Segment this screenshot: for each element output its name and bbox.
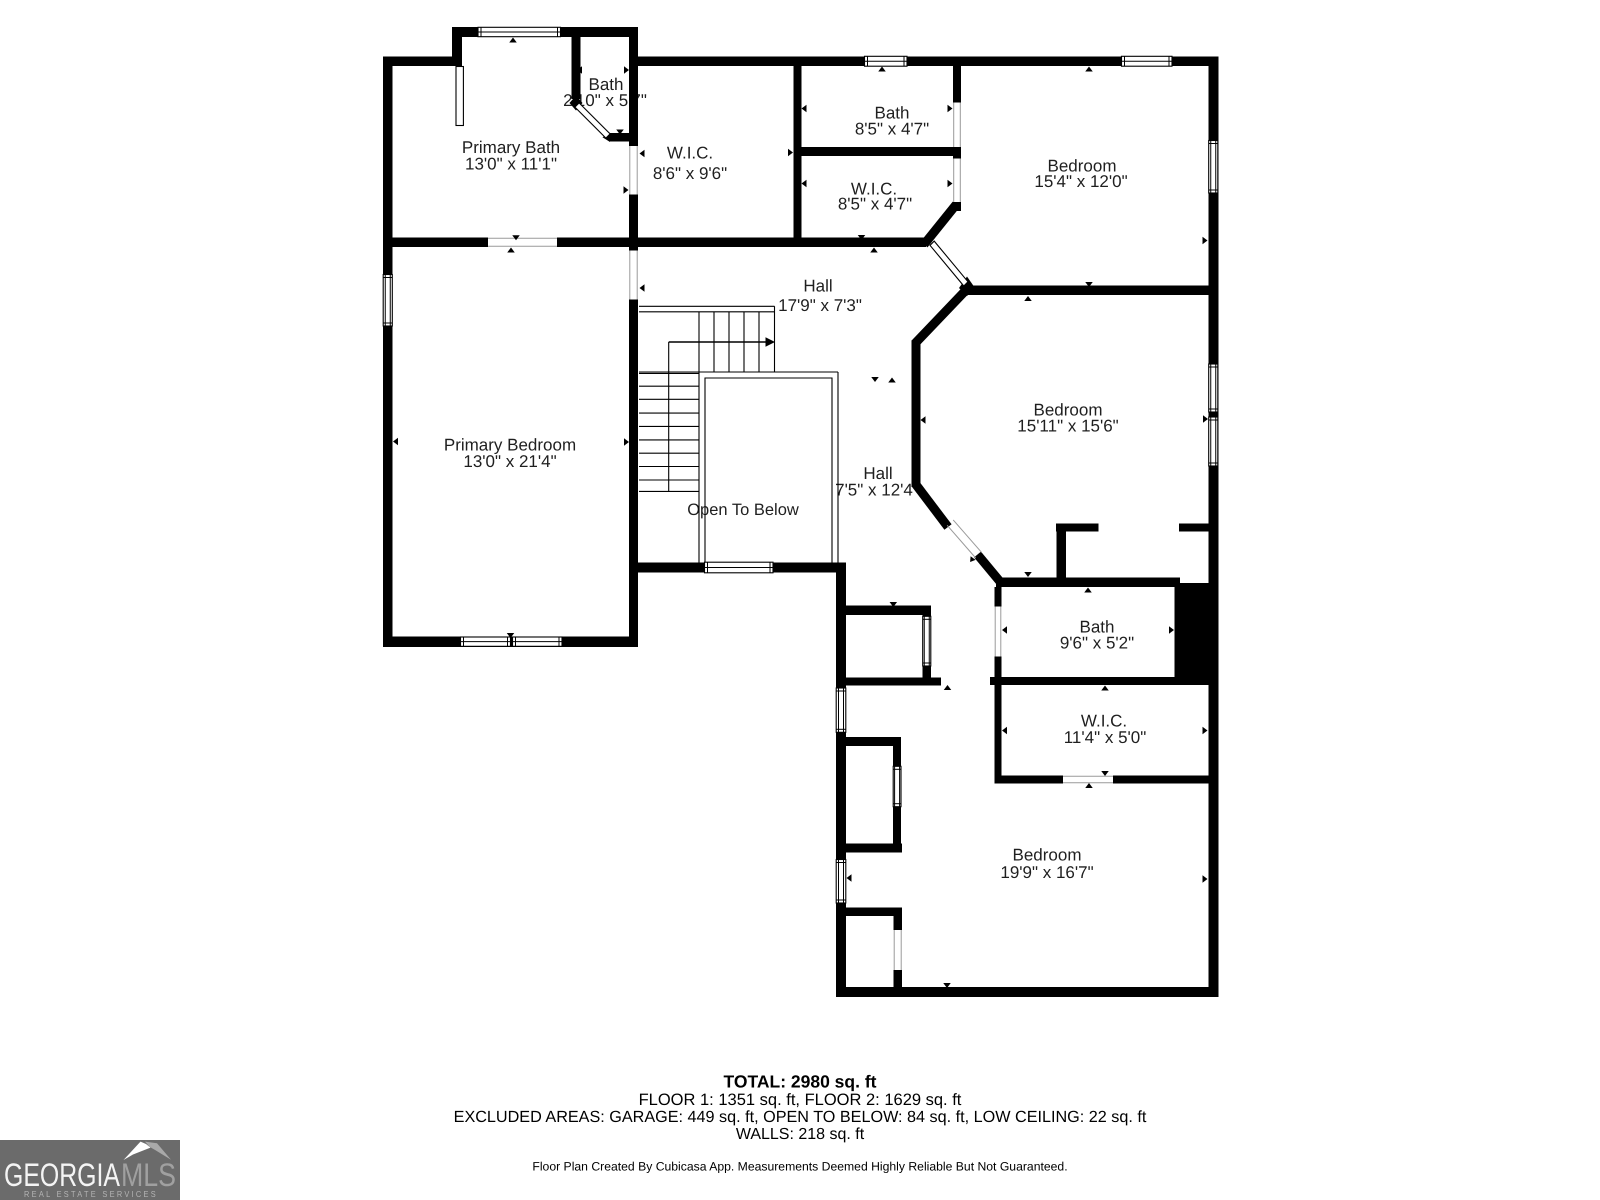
svg-text:15'11" x 15'6": 15'11" x 15'6" bbox=[1017, 417, 1118, 436]
svg-text:Floor Plan Created By Cubicasa: Floor Plan Created By Cubicasa App. Meas… bbox=[532, 1160, 1067, 1174]
svg-text:GEORGIA: GEORGIA bbox=[4, 1157, 121, 1193]
svg-text:Hall: Hall bbox=[803, 277, 832, 296]
svg-text:7'5" x 12'4": 7'5" x 12'4" bbox=[835, 481, 919, 500]
svg-text:FLOOR 1: 1351 sq. ft, FLOOR 2:: FLOOR 1: 1351 sq. ft, FLOOR 2: 1629 sq. … bbox=[639, 1091, 962, 1109]
svg-text:19'9" x 16'7": 19'9" x 16'7" bbox=[1000, 863, 1093, 882]
svg-text:15'4" x 12'0": 15'4" x 12'0" bbox=[1034, 172, 1127, 191]
svg-text:EXCLUDED AREAS: GARAGE: 449 sq: EXCLUDED AREAS: GARAGE: 449 sq. ft, OPEN… bbox=[454, 1108, 1147, 1126]
svg-text:8'6" x 9'6": 8'6" x 9'6" bbox=[653, 164, 727, 183]
svg-text:Open To Below: Open To Below bbox=[687, 501, 799, 519]
svg-text:17'9" x 7'3": 17'9" x 7'3" bbox=[778, 296, 862, 315]
svg-text:W.I.C.: W.I.C. bbox=[667, 144, 713, 163]
svg-text:Bedroom: Bedroom bbox=[1013, 846, 1082, 865]
svg-text:REAL ESTATE SERVICES: REAL ESTATE SERVICES bbox=[24, 1190, 158, 1199]
svg-text:TOTAL: 2980 sq. ft: TOTAL: 2980 sq. ft bbox=[724, 1072, 877, 1092]
svg-text:13'0" x 21'4": 13'0" x 21'4" bbox=[463, 452, 556, 471]
svg-text:11'4" x 5'0": 11'4" x 5'0" bbox=[1064, 728, 1147, 747]
svg-text:13'0" x 11'1": 13'0" x 11'1" bbox=[465, 155, 557, 174]
svg-text:9'6" x 5'2": 9'6" x 5'2" bbox=[1060, 634, 1134, 653]
svg-text:8'5" x 4'7": 8'5" x 4'7" bbox=[855, 120, 929, 139]
svg-text:WALLS: 218 sq. ft: WALLS: 218 sq. ft bbox=[736, 1126, 865, 1143]
svg-text:MLS: MLS bbox=[121, 1157, 176, 1193]
svg-text:8'5" x 4'7": 8'5" x 4'7" bbox=[838, 195, 912, 214]
